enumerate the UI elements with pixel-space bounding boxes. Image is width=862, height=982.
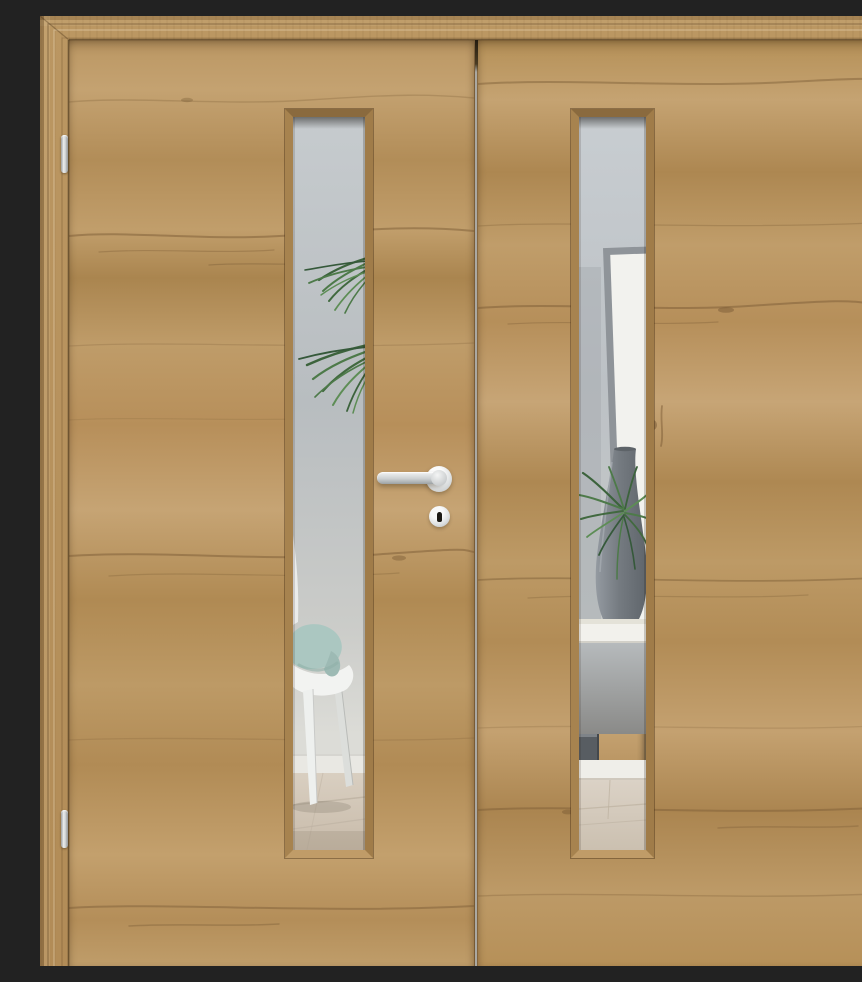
books	[579, 734, 599, 761]
floor	[579, 780, 646, 850]
vase-rim	[614, 447, 636, 451]
chair-shadow	[293, 801, 351, 813]
hinge-top-left	[61, 135, 68, 173]
sideboard-interior	[579, 643, 646, 734]
double-door-photo	[40, 16, 862, 966]
glass-left	[293, 117, 365, 850]
baseboard	[293, 754, 365, 773]
scene-right	[579, 117, 646, 850]
glass-right	[579, 117, 646, 850]
hinge-bottom-left	[61, 810, 68, 848]
lever-handle-neck	[431, 470, 447, 486]
glazing-right	[571, 109, 654, 858]
sideboard-top-board	[579, 624, 646, 643]
keyhole	[437, 512, 442, 522]
sideboard-top-face	[579, 619, 646, 624]
scene-left	[293, 117, 365, 850]
glazing-left	[285, 109, 373, 858]
sideboard-lower-board	[579, 760, 646, 780]
frame-profile-lines	[40, 16, 862, 966]
